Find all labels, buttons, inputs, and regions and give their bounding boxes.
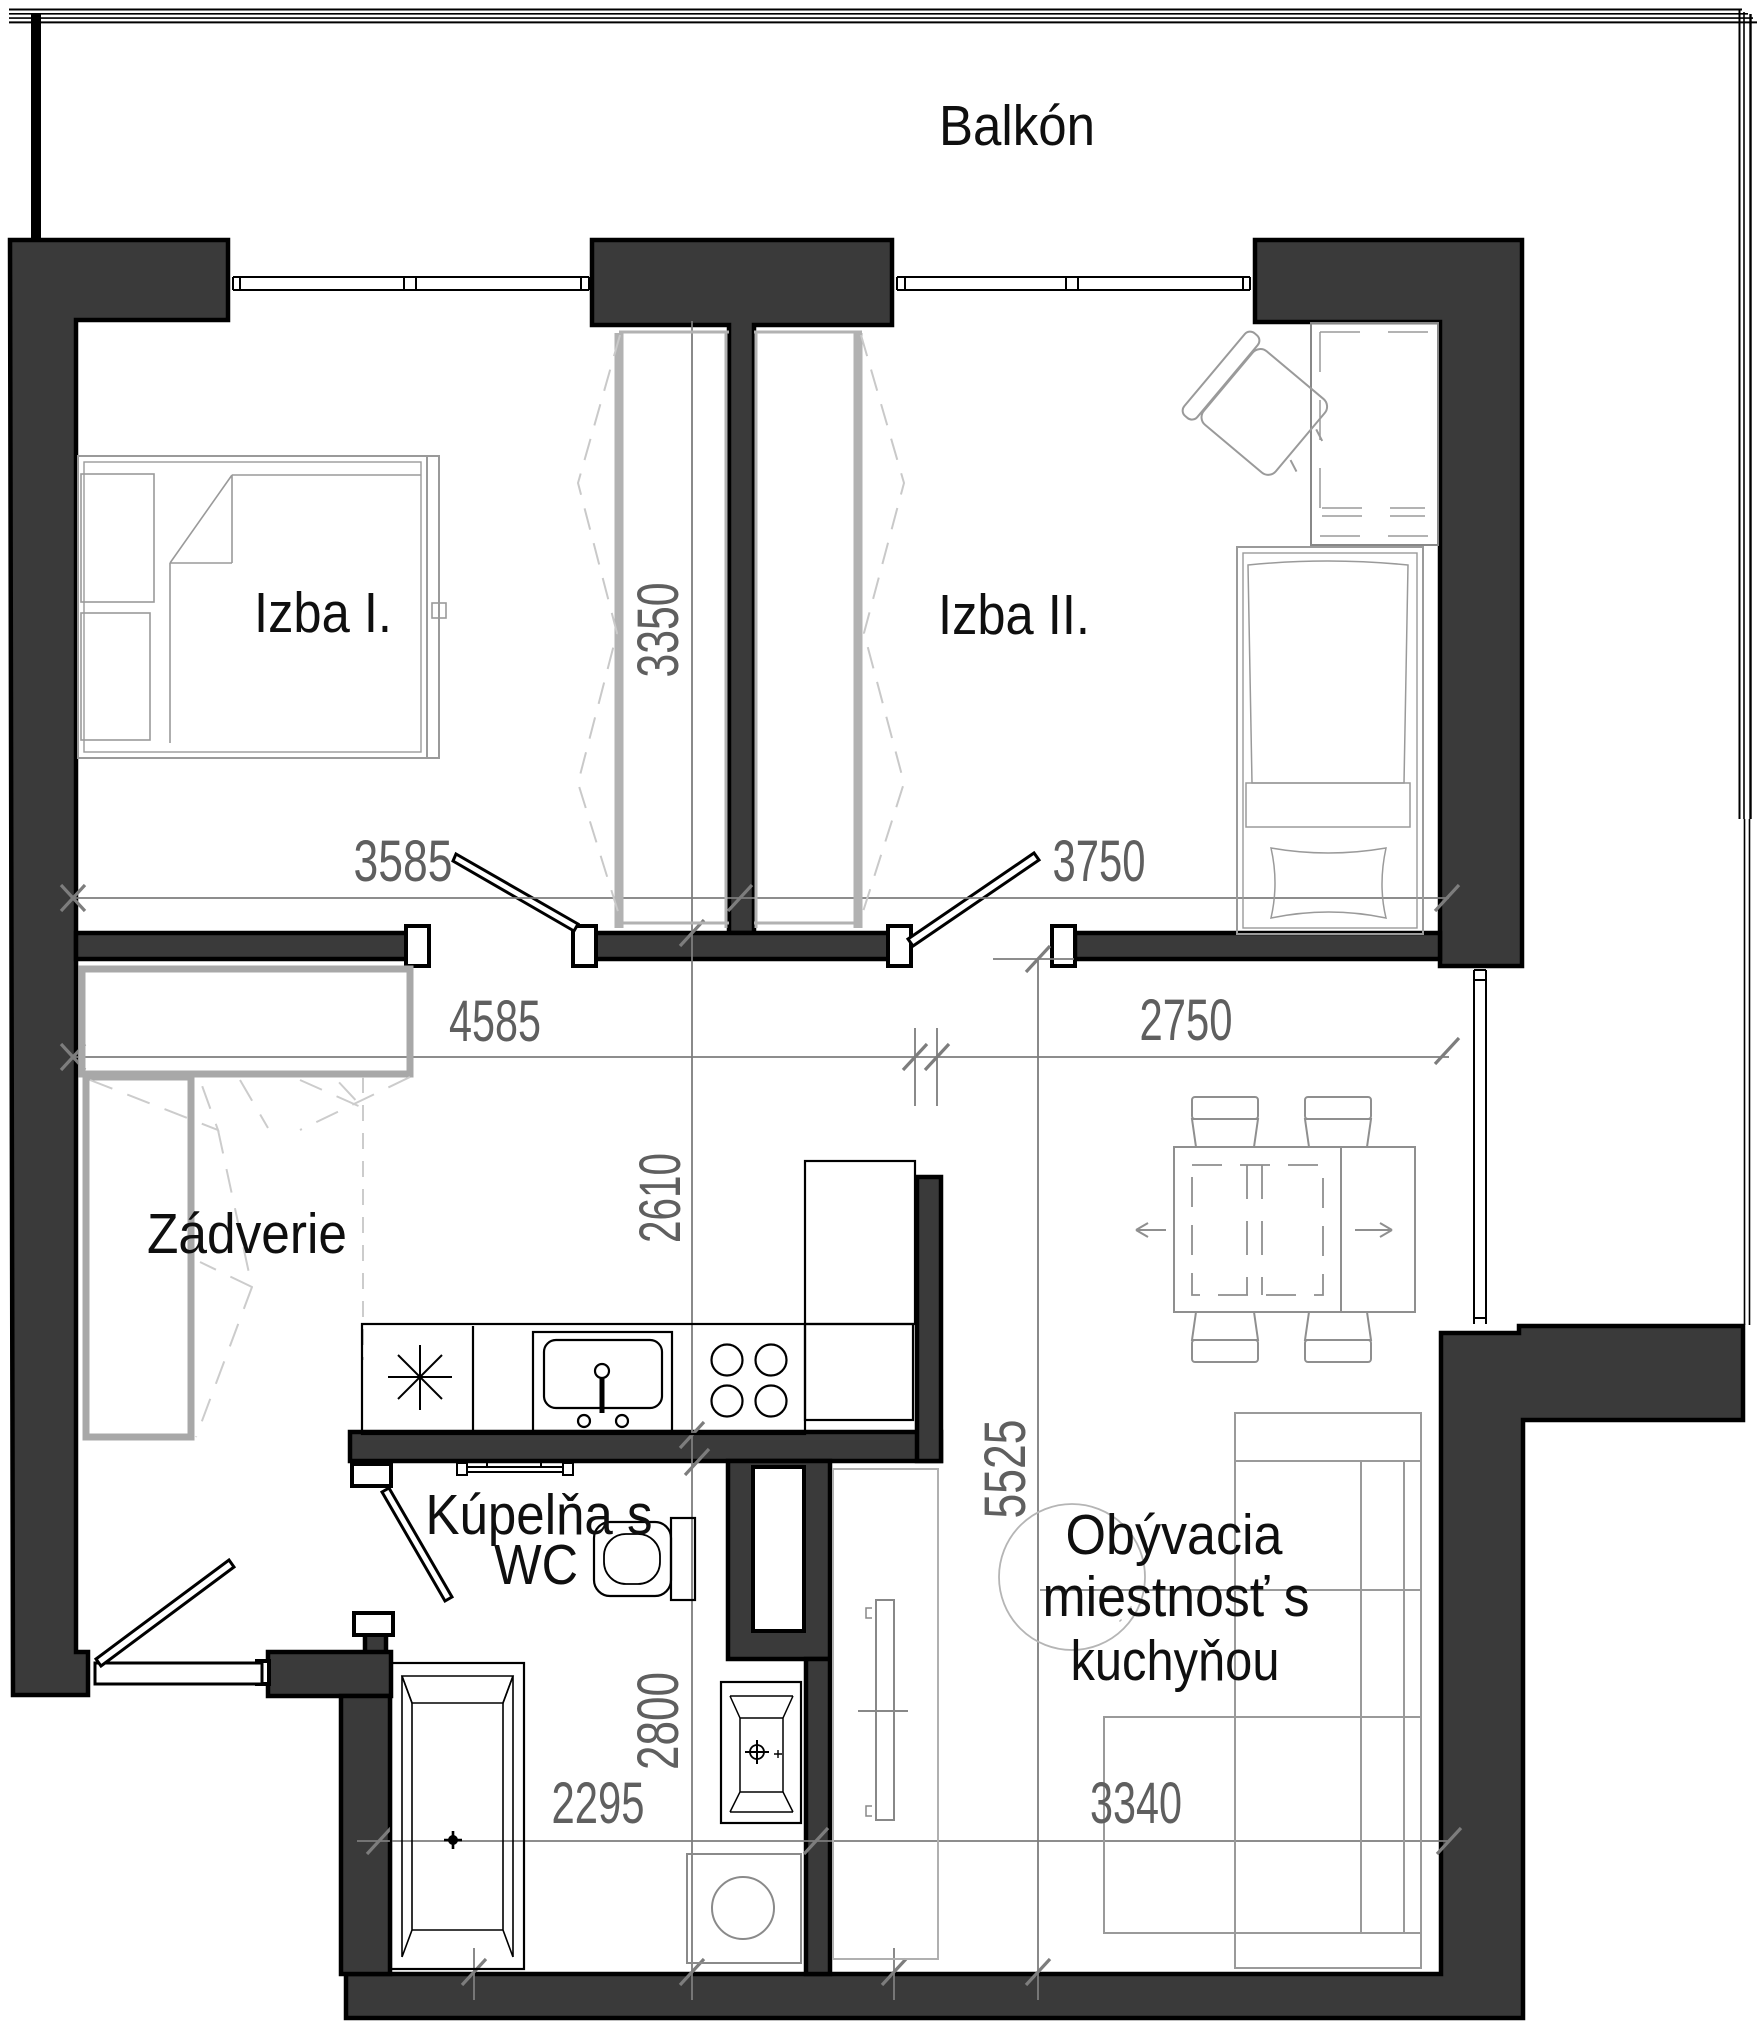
svg-text:Obývacia: Obývacia (1066, 1503, 1283, 1567)
svg-text:2800: 2800 (626, 1672, 691, 1770)
svg-text:3585: 3585 (354, 829, 453, 894)
svg-text:2750: 2750 (1140, 988, 1233, 1053)
svg-text:Balkón: Balkón (939, 94, 1095, 158)
svg-text:2295: 2295 (552, 1771, 645, 1836)
svg-text:kuchyňou: kuchyňou (1071, 1629, 1280, 1693)
svg-text:3750: 3750 (1053, 829, 1146, 894)
svg-text:5525: 5525 (973, 1420, 1038, 1519)
svg-text:Izba I.: Izba I. (254, 581, 392, 645)
svg-text:3350: 3350 (626, 583, 691, 678)
svg-text:WC: WC (494, 1533, 578, 1597)
svg-text:3340: 3340 (1090, 1771, 1182, 1836)
svg-text:Zádverie: Zádverie (147, 1202, 347, 1266)
svg-text:4585: 4585 (449, 989, 541, 1054)
svg-text:2610: 2610 (628, 1153, 693, 1243)
svg-text:Izba II.: Izba II. (938, 583, 1090, 647)
svg-text:miestnosť s: miestnosť s (1043, 1565, 1310, 1629)
